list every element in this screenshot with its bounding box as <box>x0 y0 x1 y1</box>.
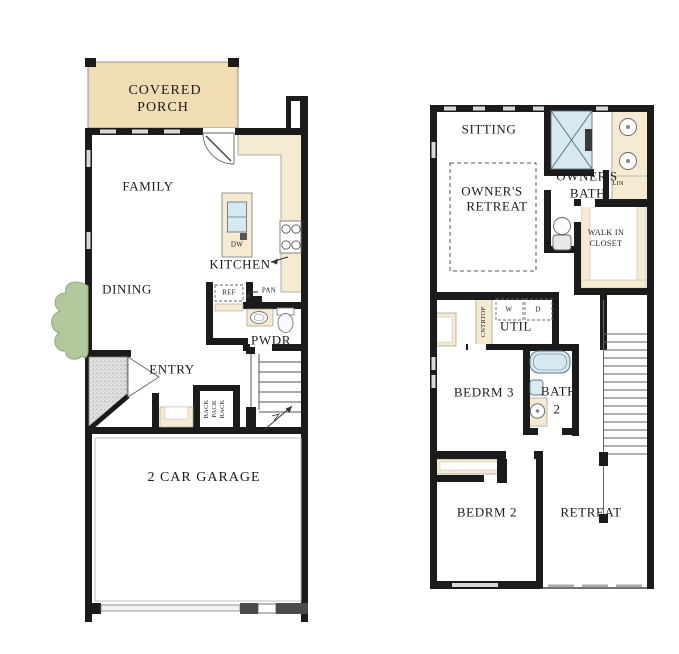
label-covered-porch-line2: PORCH <box>137 101 189 115</box>
label-bedrm3: BEDRM 3 <box>454 386 514 399</box>
pwdr-toilet-icon <box>278 314 293 333</box>
stairs-second-floor <box>599 295 647 523</box>
label-walk-in-closet-line1: WALK IN <box>588 229 624 237</box>
label-dryer: D <box>535 307 540 314</box>
label-rack-word-back: BACK <box>204 400 211 419</box>
label-pan: PAN <box>262 288 276 295</box>
label-walk-in-closet-line2: CLOSET <box>590 240 623 248</box>
dishwasher-icon <box>240 233 247 240</box>
garage-door <box>101 605 240 611</box>
tree-icon <box>52 282 88 359</box>
shower-icon <box>544 105 594 176</box>
label-family: FAMILY <box>122 180 173 193</box>
floor-plan-graphics <box>0 0 679 654</box>
label-washer: W <box>506 307 513 314</box>
label-owners-retreat-line2: RETREAT <box>466 200 527 213</box>
label-dw: DW <box>231 242 243 249</box>
floor-plan-canvas: COVERED PORCH FAMILY KITCHEN DINING REF … <box>0 0 679 654</box>
label-sitting: SITTING <box>462 123 517 136</box>
label-rack-word-rack: RACK <box>220 400 227 419</box>
label-rack-word-pack: PACK <box>212 400 219 418</box>
label-pwdr: PWDR <box>251 334 291 347</box>
garage-inner-line <box>95 438 301 601</box>
label-bath2-line2: 2 <box>553 403 560 416</box>
label-bedrm2: BEDRM 2 <box>457 506 517 519</box>
cooktop-icon <box>280 221 301 253</box>
entry-stoop <box>89 357 127 429</box>
label-garage: 2 CAR GARAGE <box>147 471 260 485</box>
label-covered-porch-line1: COVERED <box>128 84 201 98</box>
label-cntrtop: CNTRTOP <box>481 307 488 338</box>
label-ref: REF <box>222 290 236 297</box>
label-owners-bath-line2: BATH <box>570 187 606 200</box>
label-util: UTIL <box>500 320 532 333</box>
stairs-first-floor <box>246 347 301 433</box>
label-bath2-line1: BATH <box>541 385 577 398</box>
label-owners-retreat-line1: OWNER'S <box>461 185 522 198</box>
toilet-icon <box>554 218 571 235</box>
owners-retreat-outline <box>450 163 536 271</box>
chimney <box>286 96 308 133</box>
entry-area <box>85 350 159 431</box>
label-owners-bath-line1: OWNER'S <box>556 170 617 183</box>
label-kitchen: KITCHEN <box>209 258 270 271</box>
powder-room-fixtures <box>247 308 294 333</box>
label-lin: LIN <box>612 181 623 188</box>
label-dining: DINING <box>102 283 152 296</box>
pwdr-sink-icon <box>251 312 268 324</box>
label-entry: ENTRY <box>149 363 195 376</box>
label-retreat: RETREAT <box>560 506 621 519</box>
